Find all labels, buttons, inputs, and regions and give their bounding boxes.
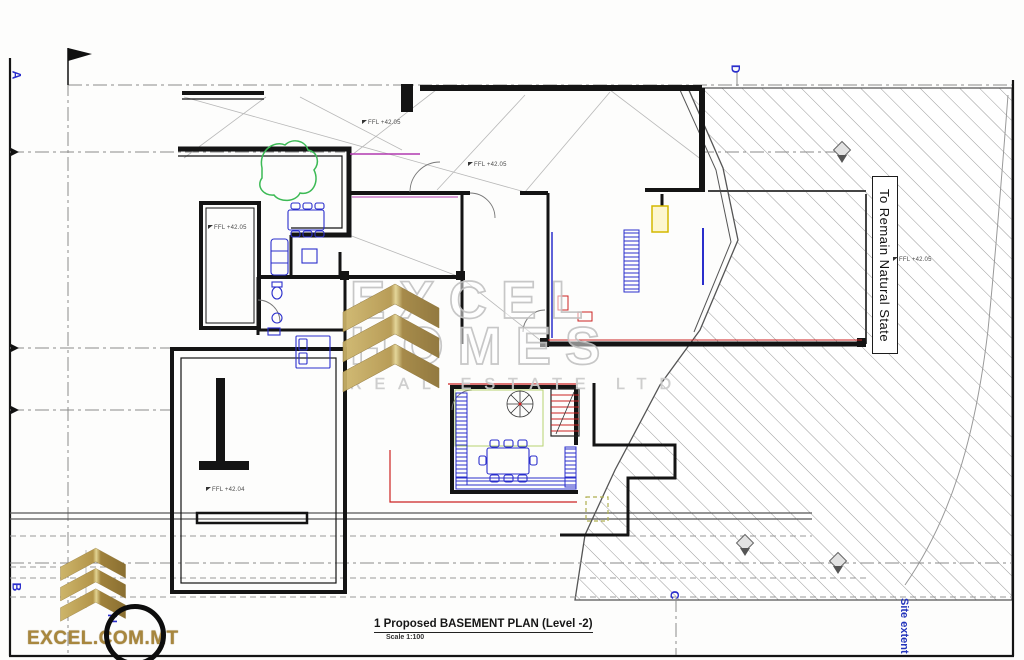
- ffl-annotation: FFL +42.05: [208, 225, 247, 231]
- grid-marker-c: C: [667, 591, 681, 600]
- site-extent-label: Site extent: [896, 596, 916, 656]
- ffl-annotation: FFL +42.04: [206, 487, 245, 493]
- plan-title: 1 Proposed BASEMENT PLAN (Level -2): [374, 618, 593, 633]
- grid-marker-a: A: [9, 71, 23, 80]
- door-arcs: [258, 162, 545, 410]
- side-table: [302, 249, 317, 263]
- furniture: [268, 203, 537, 482]
- survey-flag-icon: [11, 48, 92, 414]
- spiral-stair: [507, 391, 533, 417]
- ffl-annotation: FFL +42.05: [893, 257, 932, 263]
- ffl-annotation: FFL +42.05: [468, 162, 507, 168]
- north-circle-icon: [104, 604, 166, 660]
- natural-state-label: To Remain Natural State: [872, 176, 898, 354]
- grid-marker-b: B: [9, 583, 23, 592]
- drawing-sheet: EXCEL HOMES REAL ESTATE LTD To Remain Na…: [0, 0, 1024, 660]
- ffl-annotation: FFL +42.05: [362, 120, 401, 126]
- floor-plan-drawing: [0, 0, 1024, 660]
- sofa: [271, 239, 288, 275]
- bed: [296, 336, 330, 368]
- plan-scale: Scale 1:100: [386, 634, 424, 641]
- grid-marker-d: D: [728, 65, 742, 74]
- breakfast-table: [288, 203, 324, 237]
- slope-triangulation-lines: [184, 90, 702, 344]
